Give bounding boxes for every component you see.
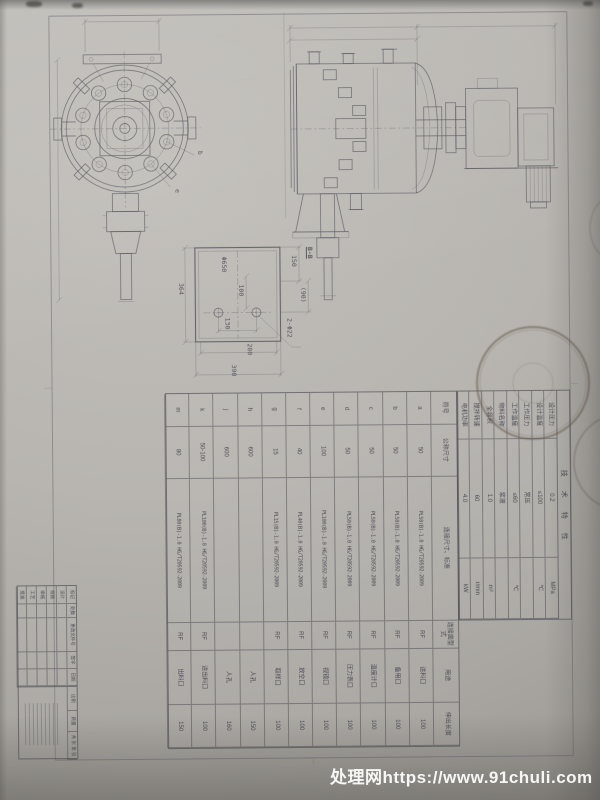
- watermark-text: 处理网https://www.91chuli.com: [330, 768, 593, 787]
- round-stamp: [0, 0, 589, 439]
- watermark: 处理网https://www.91chuli.com: [330, 763, 593, 788]
- photo-background: { "watermark": {"text": "处理网https://www.…: [0, 0, 600, 800]
- paper-edge-shadow: [0, 0, 7, 800]
- paper-curl-shadow: [545, 0, 600, 800]
